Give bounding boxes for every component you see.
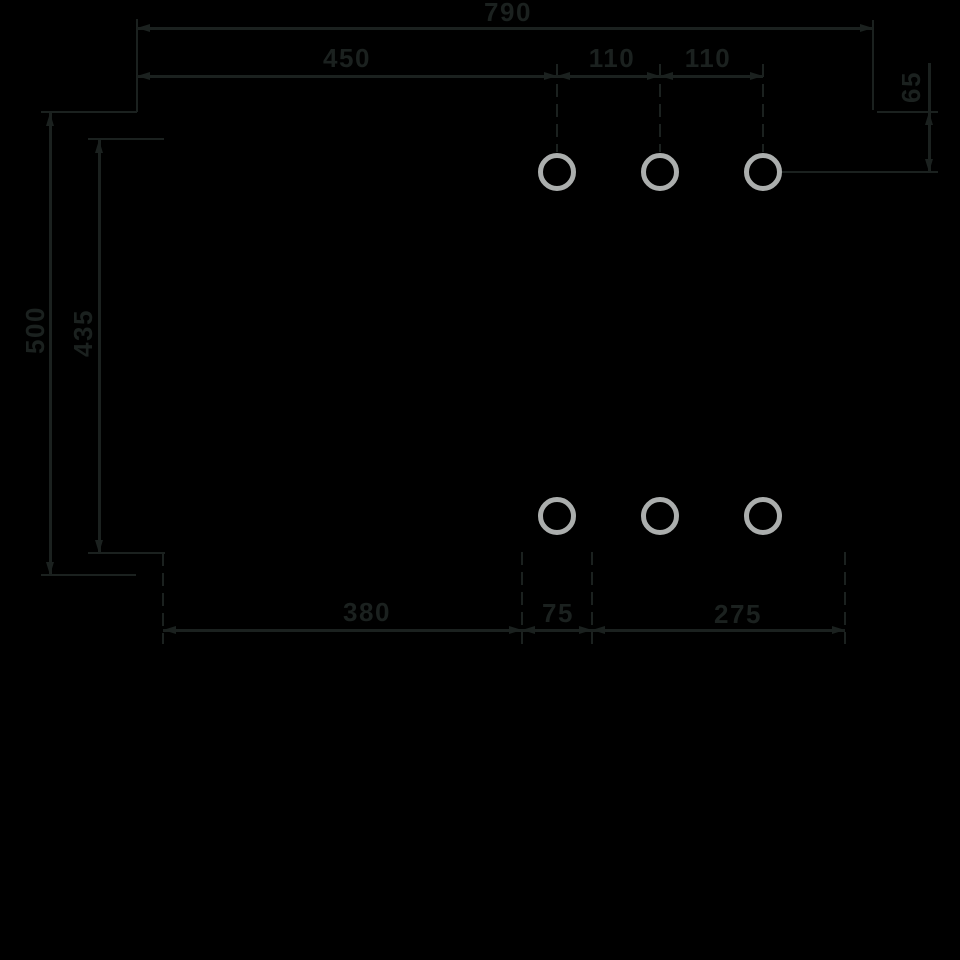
arrow-110b-left bbox=[660, 72, 673, 80]
dim-label-500: 500 bbox=[22, 306, 48, 354]
dim-label-75: 75 bbox=[542, 600, 574, 626]
dim-label-790: 790 bbox=[484, 0, 532, 25]
mounting-hole-bottom-2 bbox=[641, 497, 679, 535]
arrow-275-right bbox=[832, 626, 845, 634]
arrow-110b-right bbox=[750, 72, 763, 80]
dim-line-790 bbox=[137, 27, 873, 30]
arrow-450-left bbox=[137, 72, 150, 80]
mounting-hole-top-1 bbox=[538, 153, 576, 191]
arrow-75-right bbox=[579, 626, 592, 634]
arrow-500-bottom bbox=[46, 562, 54, 575]
dim-label-275: 275 bbox=[714, 601, 762, 627]
arrow-110a-right bbox=[647, 72, 660, 80]
arrow-380-left bbox=[163, 626, 176, 634]
extension-line-top-left bbox=[41, 111, 137, 113]
dim-line-380-75-275 bbox=[163, 629, 845, 632]
arrow-790-right bbox=[860, 24, 873, 32]
arrow-75-left bbox=[522, 626, 535, 634]
arrow-65-top bbox=[925, 112, 933, 125]
dimension-drawing: 790 450 110 110 65 500 435 380 75 275 bbox=[0, 0, 960, 960]
mounting-hole-top-3 bbox=[744, 153, 782, 191]
mounting-hole-bottom-1 bbox=[538, 497, 576, 535]
arrow-790-left bbox=[137, 24, 150, 32]
dim-label-110-second: 110 bbox=[685, 45, 731, 71]
dim-label-435: 435 bbox=[70, 309, 96, 357]
dim-line-435 bbox=[98, 139, 101, 554]
arrow-500-top bbox=[46, 113, 54, 126]
arrow-435-top bbox=[95, 140, 103, 153]
dim-label-380: 380 bbox=[343, 599, 391, 625]
arrow-380-right bbox=[509, 626, 522, 634]
extension-line-hole-row-right bbox=[782, 171, 938, 173]
dim-label-110-first: 110 bbox=[589, 45, 635, 71]
dim-label-450: 450 bbox=[323, 45, 371, 71]
mounting-hole-top-2 bbox=[641, 153, 679, 191]
arrow-275-left bbox=[592, 626, 605, 634]
mounting-hole-bottom-3 bbox=[744, 497, 782, 535]
extension-line-right-corner bbox=[872, 20, 874, 110]
arrow-435-bottom bbox=[95, 540, 103, 553]
arrow-450-right bbox=[544, 72, 557, 80]
extension-line-left-corner bbox=[136, 19, 138, 112]
arrow-65-bottom bbox=[925, 159, 933, 172]
dim-label-65: 65 bbox=[898, 71, 924, 103]
arrow-110a-left bbox=[557, 72, 570, 80]
extension-line-500-bottom bbox=[41, 574, 136, 576]
